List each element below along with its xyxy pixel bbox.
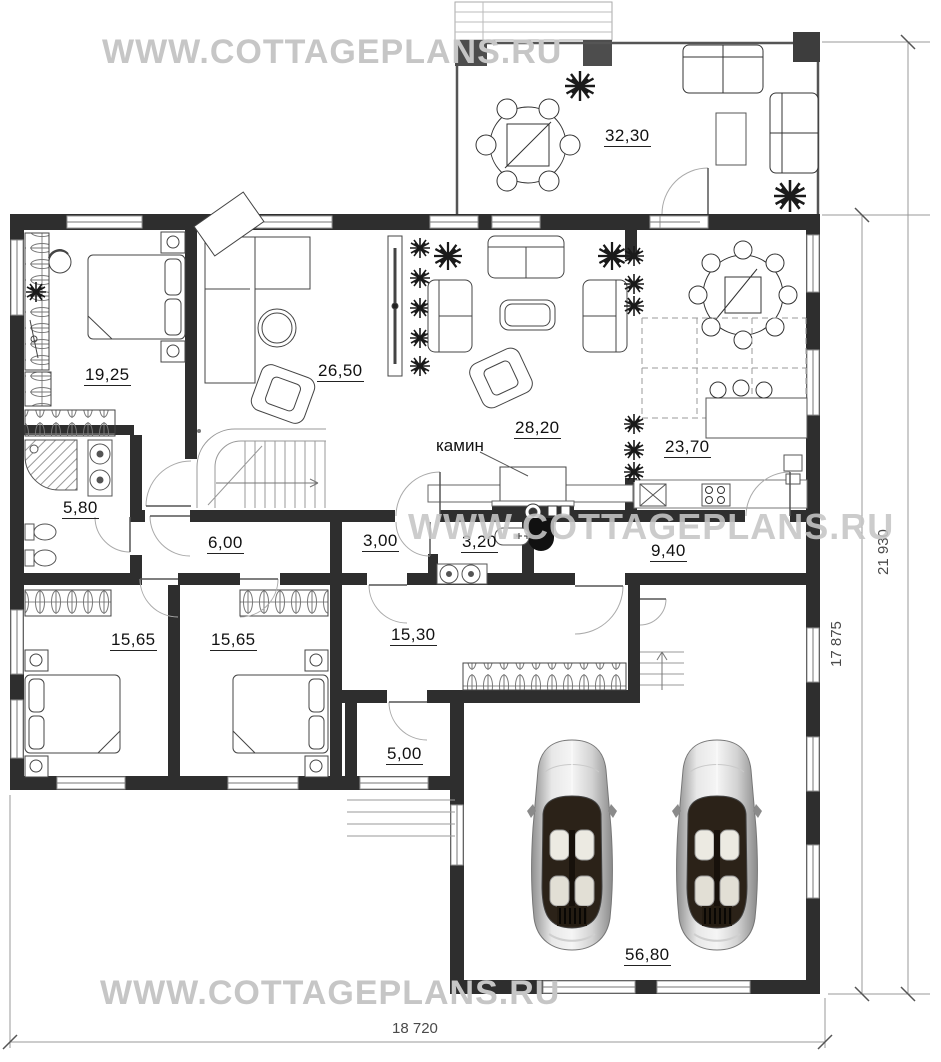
- room-label-bedroom-2: 15,65: [110, 630, 157, 650]
- staircase: [197, 429, 326, 508]
- room-label-living-room: 26,50: [317, 361, 364, 381]
- room-label-terrace: 32,30: [604, 126, 651, 146]
- fireplace-label: камин: [436, 436, 484, 456]
- bedroom-2-furniture: [25, 590, 120, 777]
- room-label-garage: 56,80: [624, 945, 671, 965]
- car-icon: [527, 740, 617, 950]
- room-label-kitchen: 23,70: [664, 437, 711, 457]
- car-icon: [672, 740, 762, 950]
- room-label-hallway: 3,00: [362, 531, 399, 551]
- kitchen-furniture: [624, 241, 807, 508]
- dimension-total-width: 18 720: [392, 1020, 438, 1037]
- room-label-porch: 5,00: [386, 744, 423, 764]
- dimension-house-height: 17 875: [828, 621, 845, 667]
- watermark-top: WWW.COTTAGEPLANS.RU: [102, 33, 562, 72]
- bedroom-3-furniture: [233, 590, 328, 777]
- room-label-family-room: 28,20: [514, 418, 561, 438]
- room-label-bedroom-3: 15,65: [210, 630, 257, 650]
- floor-plan-page: WWW.COTTAGEPLANS.RU WWW.COTTAGEPLANS.RU …: [0, 0, 941, 1062]
- watermark-middle: WWW.COTTAGEPLANS.RU: [408, 506, 894, 548]
- room-label-bathroom: 5,80: [62, 498, 99, 518]
- family-room-furniture: [428, 236, 633, 551]
- bedroom-1-furniture: [25, 232, 185, 436]
- watermark-bottom: WWW.COTTAGEPLANS.RU: [100, 974, 560, 1013]
- room-label-entrance-hall: 15,30: [390, 625, 437, 645]
- room-label-bedroom-1: 19,25: [84, 365, 131, 385]
- room-label-corridor: 6,00: [207, 533, 244, 553]
